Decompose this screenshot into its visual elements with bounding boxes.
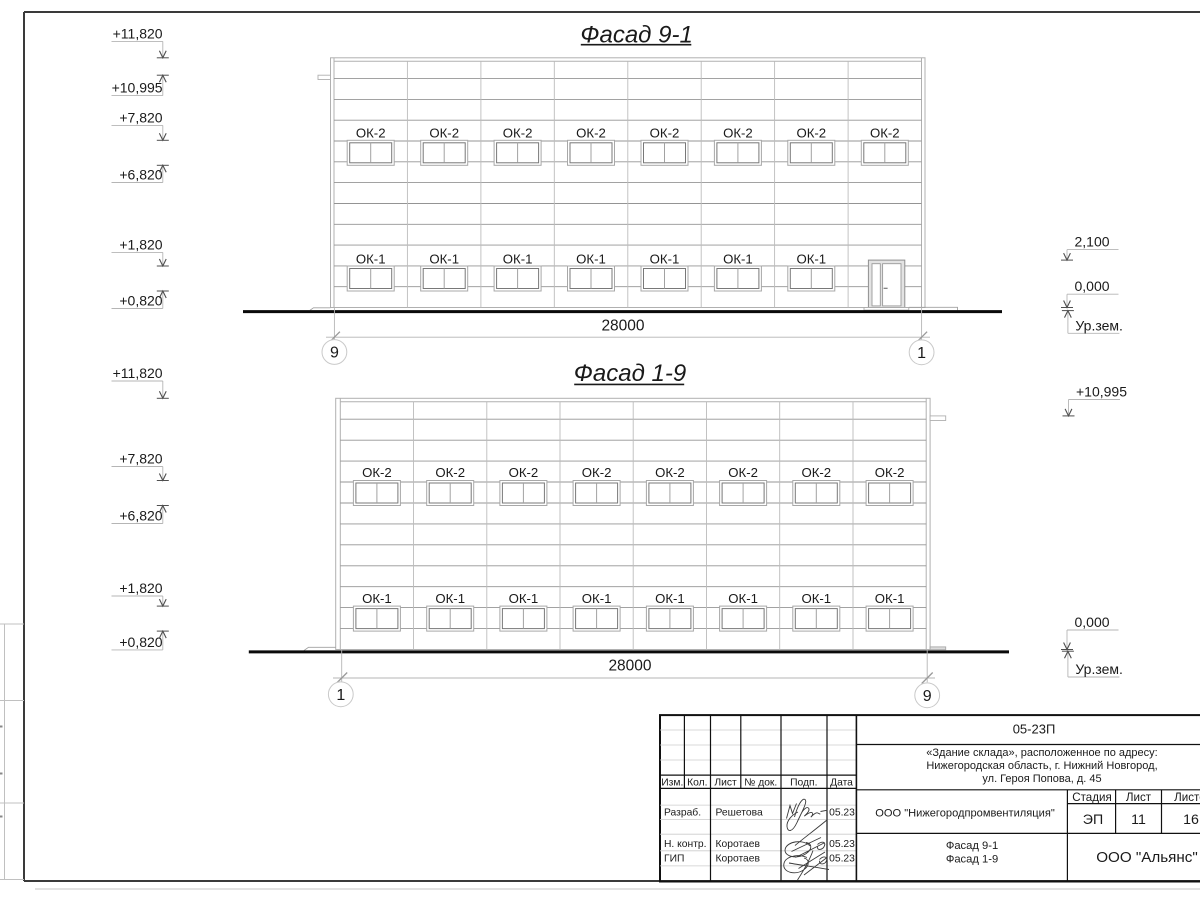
svg-text:ОК-1: ОК-1 — [362, 591, 392, 606]
svg-text:ОК-2: ОК-2 — [655, 465, 685, 480]
svg-text:+10,995: +10,995 — [112, 80, 163, 96]
svg-text:ОК-2: ОК-2 — [870, 126, 900, 141]
svg-text:Фасад 1-9: Фасад 1-9 — [946, 854, 998, 866]
svg-text:Лист: Лист — [1126, 791, 1152, 804]
svg-text:ЭП: ЭП — [1083, 812, 1103, 828]
svg-text:Разраб.: Разраб. — [664, 807, 701, 819]
svg-text:+6,820: +6,820 — [119, 508, 162, 524]
svg-text:+11,820: +11,820 — [113, 25, 163, 41]
svg-text:ООО "Нижегородпромвентиляция": ООО "Нижегородпромвентиляция" — [875, 808, 1055, 820]
svg-text:2,100: 2,100 — [1075, 234, 1110, 250]
svg-text:ОК-1: ОК-1 — [655, 591, 685, 606]
svg-text:9: 9 — [330, 345, 339, 362]
svg-text:Листов: Листов — [1174, 791, 1200, 804]
svg-text:+10,995: +10,995 — [1076, 384, 1127, 400]
svg-text:Решетова: Решетова — [716, 808, 763, 819]
svg-text:№ док.: № док. — [744, 777, 777, 788]
svg-text:ОК-1: ОК-1 — [650, 252, 680, 267]
svg-text:ОК-1: ОК-1 — [435, 591, 465, 606]
svg-text:ОК-1: ОК-1 — [796, 252, 826, 267]
svg-text:Фасад 1-9: Фасад 1-9 — [574, 360, 686, 387]
svg-text:ГИП: ГИП — [664, 854, 684, 865]
svg-text:11: 11 — [1131, 812, 1146, 828]
svg-text:Кол.: Кол. — [687, 777, 707, 788]
svg-text:Коротаев: Коротаев — [716, 854, 761, 865]
svg-text:Фасад 9-1: Фасад 9-1 — [946, 840, 998, 852]
svg-text:9: 9 — [923, 688, 932, 705]
svg-text:0,000: 0,000 — [1075, 614, 1110, 630]
svg-text:05.23: 05.23 — [829, 854, 855, 865]
svg-text:ул. Героя Попова, д. 45: ул. Героя Попова, д. 45 — [982, 773, 1101, 785]
svg-text:ОК-2: ОК-2 — [723, 126, 753, 141]
svg-text:1: 1 — [917, 345, 926, 362]
svg-text:Лист: Лист — [714, 777, 737, 788]
svg-text:ОК-2: ОК-2 — [796, 126, 826, 141]
svg-text:16: 16 — [1183, 812, 1199, 828]
svg-text:05-23П: 05-23П — [1013, 722, 1056, 737]
svg-text:ОК-2: ОК-2 — [509, 465, 539, 480]
svg-text:Дата: Дата — [830, 777, 853, 788]
svg-text:ОК-1: ОК-1 — [356, 252, 386, 267]
svg-text:+7,820: +7,820 — [119, 109, 162, 125]
svg-text:28000: 28000 — [601, 317, 644, 334]
svg-text:05.23: 05.23 — [829, 839, 855, 850]
svg-text:+1,820: +1,820 — [119, 236, 162, 252]
svg-text:ОК-2: ОК-2 — [875, 465, 905, 480]
svg-text:ОК-1: ОК-1 — [728, 591, 758, 606]
svg-text:ОК-2: ОК-2 — [728, 465, 758, 480]
svg-text:ООО "Альянс": ООО "Альянс" — [1096, 849, 1198, 866]
svg-text:Ур.зем.: Ур.зем. — [1075, 317, 1123, 333]
svg-text:Коротаев: Коротаев — [716, 839, 761, 850]
svg-text:+1,820: +1,820 — [119, 580, 162, 596]
svg-text:1: 1 — [336, 687, 345, 704]
svg-text:Стадия: Стадия — [1072, 791, 1112, 804]
svg-text:ОК-1: ОК-1 — [723, 252, 753, 267]
svg-text:Изм.: Изм. — [661, 777, 683, 788]
svg-text:ОК-1: ОК-1 — [582, 591, 612, 606]
svg-text:ОК-1: ОК-1 — [509, 591, 539, 606]
svg-text:ОК-2: ОК-2 — [582, 465, 612, 480]
svg-text:ОК-2: ОК-2 — [650, 126, 680, 141]
svg-text:+11,820: +11,820 — [113, 365, 163, 381]
svg-text:28000: 28000 — [608, 658, 651, 675]
svg-text:ОК-2: ОК-2 — [362, 465, 392, 480]
svg-text:05.23: 05.23 — [829, 808, 855, 819]
svg-text:ОК-2: ОК-2 — [356, 126, 386, 141]
svg-text:Нижегородская область, г. Нижн: Нижегородская область, г. Нижний Новгоро… — [926, 760, 1157, 772]
svg-text:+7,820: +7,820 — [119, 451, 162, 467]
svg-text:«Здание склада», расположенное: «Здание склада», расположенное по адресу… — [926, 747, 1157, 759]
svg-text:Подп.: Подп. — [790, 777, 817, 788]
svg-text:+6,820: +6,820 — [119, 167, 162, 183]
svg-text:ОК-2: ОК-2 — [429, 126, 459, 141]
svg-text:ОК-1: ОК-1 — [429, 252, 459, 267]
svg-text:ОК-1: ОК-1 — [503, 252, 533, 267]
svg-text:ОК-2: ОК-2 — [576, 126, 606, 141]
svg-text:ОК-2: ОК-2 — [503, 126, 533, 141]
svg-text:ОК-2: ОК-2 — [435, 465, 465, 480]
svg-text:+0,820: +0,820 — [119, 293, 162, 309]
svg-text:Н. контр.: Н. контр. — [664, 839, 707, 850]
svg-text:ОК-1: ОК-1 — [801, 591, 831, 606]
svg-text:+0,820: +0,820 — [119, 634, 162, 650]
svg-text:ОК-1: ОК-1 — [576, 252, 606, 267]
svg-text:ОК-2: ОК-2 — [801, 465, 831, 480]
svg-text:0,000: 0,000 — [1075, 278, 1110, 294]
svg-text:ОК-1: ОК-1 — [875, 591, 905, 606]
svg-text:Ур.зем.: Ур.зем. — [1075, 661, 1123, 677]
